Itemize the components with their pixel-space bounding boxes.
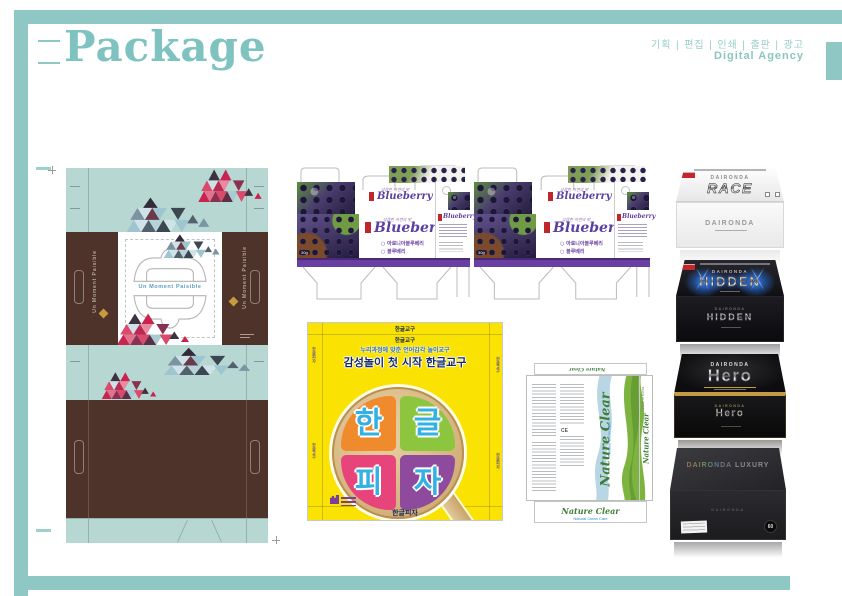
brand-text: DAIRONDA xyxy=(687,462,732,469)
made-in-text: Made in Korea xyxy=(641,378,645,418)
triangle-pattern xyxy=(118,312,194,345)
cut-line xyxy=(211,520,222,542)
crop-mark xyxy=(52,166,53,174)
bottom-flap: Nature Clear Natural Clean Care xyxy=(534,501,647,523)
fine-print xyxy=(714,389,746,390)
services-text: 기획 | 편집 | 인쇄 | 출판 | 광고 xyxy=(651,36,804,51)
brand-text: DAIRONDA xyxy=(677,307,783,311)
blueberry-logo-small: Blueberry xyxy=(443,213,476,220)
bottom-flap-outline xyxy=(297,267,470,300)
pizza-subheadline: 누리과정에 맞춘 언어감각 놀이교구 xyxy=(308,345,502,354)
slice-letter: 글 xyxy=(414,409,442,439)
berry-branch-photo xyxy=(389,166,465,183)
dieline-side-panel-right: Un Moment Paisible xyxy=(222,232,268,345)
slice-letter: 피 xyxy=(355,468,383,498)
pizza-slice-orange: 한 xyxy=(341,396,396,451)
page-title: Package xyxy=(64,22,267,71)
round-badge: 60 xyxy=(764,520,777,533)
instructions-text xyxy=(532,384,556,436)
hidden-box: DAIRONDA HIDDEN DAIRONDA HIDDEN xyxy=(676,260,784,360)
flap-brand: Nature Clear xyxy=(535,506,646,516)
nutrition-text xyxy=(439,242,463,252)
box-top-face: DAIRONDA Hero xyxy=(674,354,786,394)
portfolio-page: Package 기획 | 편집 | 인쇄 | 출판 | 광고 Digital A… xyxy=(0,0,842,596)
side-panel: Blueberry xyxy=(435,182,470,258)
box-front-face: DAIRONDA Hero xyxy=(674,394,786,438)
race-box: DAIRONDA RACE DAIRONDA xyxy=(676,166,784,266)
pizza-bottom-title: 한글피자 xyxy=(308,508,502,518)
variant-line: 아로니아블루베리 xyxy=(560,240,603,247)
dieline-window-panel: Un Moment Paisible xyxy=(118,232,222,345)
gold-emblem-icon xyxy=(229,297,239,307)
pizza-header-small: 한글교구 xyxy=(308,336,502,344)
title-deco-line xyxy=(38,40,60,42)
checkbox-icon xyxy=(765,192,770,197)
blueberry-dieline-2: 상큼한 자연의 맛 Blueberry 30g 상큼한 자연의 맛 Bluebe… xyxy=(474,164,650,300)
fold-line xyxy=(308,334,502,335)
dieline-side-panel-left: Un Moment Paisible xyxy=(66,232,118,345)
instructions-text xyxy=(560,436,584,466)
gold-emblem-icon xyxy=(99,309,109,319)
box-front-face: DAIRONDA xyxy=(676,202,784,248)
frame-left-bar xyxy=(14,24,28,596)
variant-line: 아로니아블루베리 xyxy=(381,240,424,247)
frame-bottom-bar xyxy=(28,576,790,590)
weight-label: 30g xyxy=(476,250,487,255)
triangle-pattern xyxy=(121,194,213,232)
blueberry-dieline-1: 상큼한 자연의 맛 Blueberry 30g 상큼한 자연의 맛 Bluebe… xyxy=(297,164,470,300)
variant-line: 블루베리 xyxy=(381,248,406,255)
fold-dash xyxy=(70,186,80,187)
blueberry-logo: Blueberry xyxy=(377,191,433,202)
slice-letter: 한 xyxy=(355,409,383,439)
product-name: HIDDEN xyxy=(676,274,784,289)
fold-line xyxy=(88,345,89,400)
hangul-pizza-box: 한글피자 한글교구 한글교구 한글피자 한글교구 한글교구 누리과정에 맞춘 언… xyxy=(307,322,503,521)
box-front-face: DAIRONDA 60 xyxy=(670,490,786,540)
purple-band xyxy=(297,258,470,267)
bottom-flap-outline xyxy=(474,267,650,300)
dieline-top-panel xyxy=(66,168,268,232)
fine-print xyxy=(720,291,740,292)
product-name: Hero xyxy=(674,366,786,386)
pizza-slice-green: 글 xyxy=(400,396,455,451)
box-top-logo-text: 한글교구 xyxy=(308,325,502,333)
blueberry-logo-small: Blueberry xyxy=(622,213,655,220)
brand-text: DAIRONDA xyxy=(671,507,785,512)
brand-label: Un Moment Paisible xyxy=(118,284,222,290)
product-name: Hero xyxy=(675,408,785,419)
instructions-text xyxy=(560,384,584,424)
box-front-face: DAIRONDA HIDDEN xyxy=(676,296,784,342)
fine-print xyxy=(240,334,254,335)
variant-line: 블루베리 xyxy=(560,248,585,255)
label-text xyxy=(683,523,705,532)
red-seal-icon xyxy=(617,214,621,221)
triangle-pattern xyxy=(98,371,160,399)
nutrition-text xyxy=(618,242,643,252)
red-seal-icon xyxy=(369,192,374,201)
publisher-logo xyxy=(330,495,356,509)
purple-band xyxy=(474,258,650,267)
side-panel-label: Un Moment Paisible xyxy=(242,246,248,309)
box-top-face: DAIRONDA RACE xyxy=(676,166,784,202)
side-flap-text: 한글피자 xyxy=(495,453,501,469)
gold-accent-line xyxy=(704,387,756,388)
berry-photo xyxy=(474,182,532,214)
instructions-text xyxy=(532,442,556,492)
logo-text-lines xyxy=(341,497,356,506)
red-seal-icon xyxy=(438,214,442,221)
berry-photo xyxy=(627,192,649,210)
weight-label: 30g xyxy=(299,250,310,255)
fold-line xyxy=(88,400,89,518)
fold-dash xyxy=(70,361,80,362)
hero-box: DAIRONDA Hero DAIRONDA Hero xyxy=(674,354,786,456)
handle-cutout xyxy=(250,270,260,304)
nutrition-text xyxy=(618,224,647,238)
pizza-headline: 감성놀이 첫 시작 한글교구 xyxy=(308,354,502,370)
slice-letter: 자 xyxy=(414,468,442,498)
fine-print xyxy=(721,327,741,328)
nature-clear-dieline: Nature Clear CE Nature Clear Natural Cle… xyxy=(520,363,653,525)
berry-branch-photo xyxy=(568,166,646,183)
handle-cutout xyxy=(74,440,84,474)
wave-graphic xyxy=(585,376,647,501)
fine-print xyxy=(700,263,770,265)
product-name: HIDDEN xyxy=(677,312,783,322)
fold-dash xyxy=(70,208,80,209)
nutrition-text xyxy=(439,224,467,238)
brand-text: DAIRONDA xyxy=(677,220,783,227)
top-flap: Nature Clear xyxy=(534,363,647,375)
moment-box-dieline: Un Moment Paisible Un Moment Paisible Un… xyxy=(66,168,268,543)
main-panel: CE Nature Clear Natural Clean Care Natur… xyxy=(526,375,653,501)
dieline-bottom-panel xyxy=(66,400,268,518)
fine-print xyxy=(694,169,766,171)
fold-dash xyxy=(254,361,264,362)
reflection xyxy=(674,542,782,558)
margin-tick xyxy=(36,529,51,532)
side-flap-text: 한글교구 xyxy=(311,443,317,459)
flap-brand: Nature Clear xyxy=(569,366,605,372)
handle-cutout xyxy=(74,270,84,304)
fold-line xyxy=(639,376,640,500)
fold-line xyxy=(246,519,247,543)
side-panel-label: Un Moment Paisible xyxy=(92,250,98,313)
agency-text: Digital Agency xyxy=(714,50,804,62)
dieline-bottom-flaps xyxy=(66,518,268,543)
box-top-face: DAIRONDA LUXURY xyxy=(670,448,786,490)
fine-print xyxy=(240,337,250,338)
fold-line xyxy=(88,168,89,232)
red-seal-icon xyxy=(548,192,553,201)
shipping-label xyxy=(681,521,707,534)
ce-mark: CE xyxy=(561,428,568,434)
side-panel: Blueberry xyxy=(614,182,650,258)
box-top-face: DAIRONDA HIDDEN xyxy=(676,260,784,296)
castle-logo-icon xyxy=(330,495,339,504)
dieline-mint-band xyxy=(66,345,268,400)
checkbox-icon xyxy=(775,192,780,197)
product-name: LUXURY xyxy=(735,462,770,469)
crop-mark xyxy=(276,536,277,544)
title-deco-line xyxy=(38,62,60,64)
red-seal-icon xyxy=(544,222,550,233)
red-seal-icon xyxy=(365,222,371,233)
berry-photo xyxy=(448,192,470,210)
berry-photo xyxy=(297,182,355,214)
fine-print xyxy=(721,426,741,427)
fold-dash xyxy=(254,208,264,209)
blueberry-logo: Blueberry xyxy=(556,191,612,202)
frame-right-tab xyxy=(826,42,842,80)
luxury-box: DAIRONDA LUXURY DAIRONDA 60 xyxy=(670,448,786,558)
fold-line xyxy=(246,400,247,518)
brand-sub-vertical: Natural Clean Care xyxy=(607,409,612,469)
flap-sub: Natural Clean Care xyxy=(535,516,646,521)
cut-line xyxy=(177,520,188,542)
fold-line xyxy=(88,519,89,543)
triangle-pattern xyxy=(160,232,222,258)
brand-lockup: DAIRONDA LUXURY xyxy=(670,462,786,469)
triangle-pattern xyxy=(158,345,254,375)
handle-cutout xyxy=(250,440,260,474)
fine-print xyxy=(715,230,747,231)
